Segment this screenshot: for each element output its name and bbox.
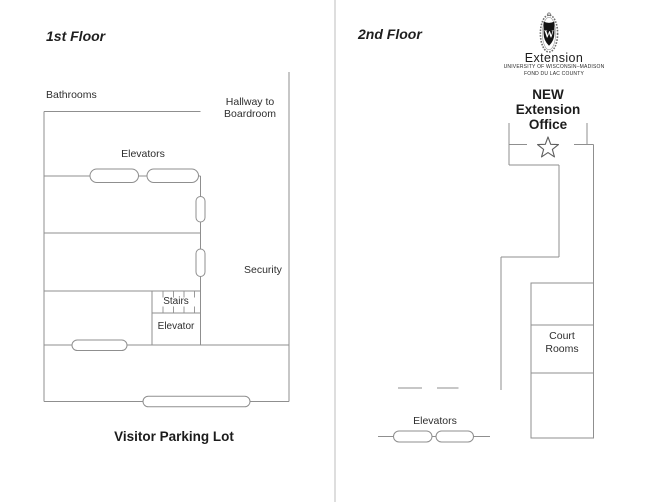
new-extension-office-label: NEW Extension Office	[498, 87, 598, 132]
floor1-title: 1st Floor	[46, 28, 105, 44]
extension-logo-name: Extension	[504, 51, 604, 65]
stairs-label: Stairs	[152, 296, 200, 307]
floor1-elevator-label: Elevator	[152, 321, 200, 332]
elevator-pill	[394, 431, 433, 442]
floor1-walls	[44, 72, 289, 402]
logo-university-line: UNIVERSITY OF WISCONSIN–MADISON	[494, 64, 614, 70]
logo-county-line: FOND DU LAC COUNTY	[494, 71, 614, 77]
elevator-pill	[436, 431, 474, 442]
uw-crest-logo-icon: W	[540, 13, 557, 52]
visitor-parking-label: Visitor Parking Lot	[93, 429, 255, 444]
door-pill	[196, 197, 205, 223]
elevator-pill	[90, 169, 139, 183]
bathrooms-label: Bathrooms	[46, 89, 97, 101]
floor-plan-page: W 1st Floor Bathrooms Hallway to Boardro…	[0, 0, 650, 502]
door-pill	[143, 396, 250, 407]
floor1-elevators-label: Elevators	[113, 148, 173, 160]
floor2-elevators-label: Elevators	[405, 415, 465, 427]
security-label: Security	[244, 264, 282, 276]
elevator-pill	[147, 169, 199, 183]
floor2-title: 2nd Floor	[358, 26, 422, 42]
court-rooms-label: Court Rooms	[531, 330, 593, 356]
door-pill	[196, 249, 205, 277]
door-pill	[72, 340, 127, 351]
star-icon	[538, 137, 559, 157]
floor2-walls	[378, 123, 594, 438]
floor1-door-pills	[72, 169, 250, 407]
hallway-boardroom-label: Hallway to Boardroom	[219, 97, 281, 120]
crest-letter: W	[544, 30, 554, 41]
